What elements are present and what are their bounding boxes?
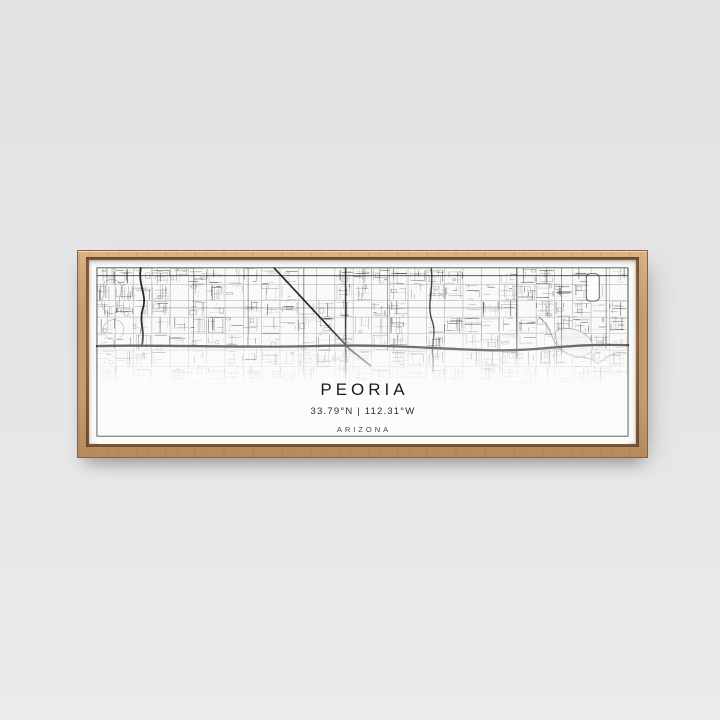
map-canvas: PEORIA 33.79°N | 112.31°W ARIZONA	[89, 260, 636, 444]
picture-frame: PEORIA 33.79°N | 112.31°W ARIZONA	[77, 250, 648, 458]
street-map-art	[89, 260, 636, 444]
frame-inner-shadow: PEORIA 33.79°N | 112.31°W ARIZONA	[86, 257, 639, 447]
wall: PEORIA 33.79°N | 112.31°W ARIZONA	[0, 0, 720, 720]
